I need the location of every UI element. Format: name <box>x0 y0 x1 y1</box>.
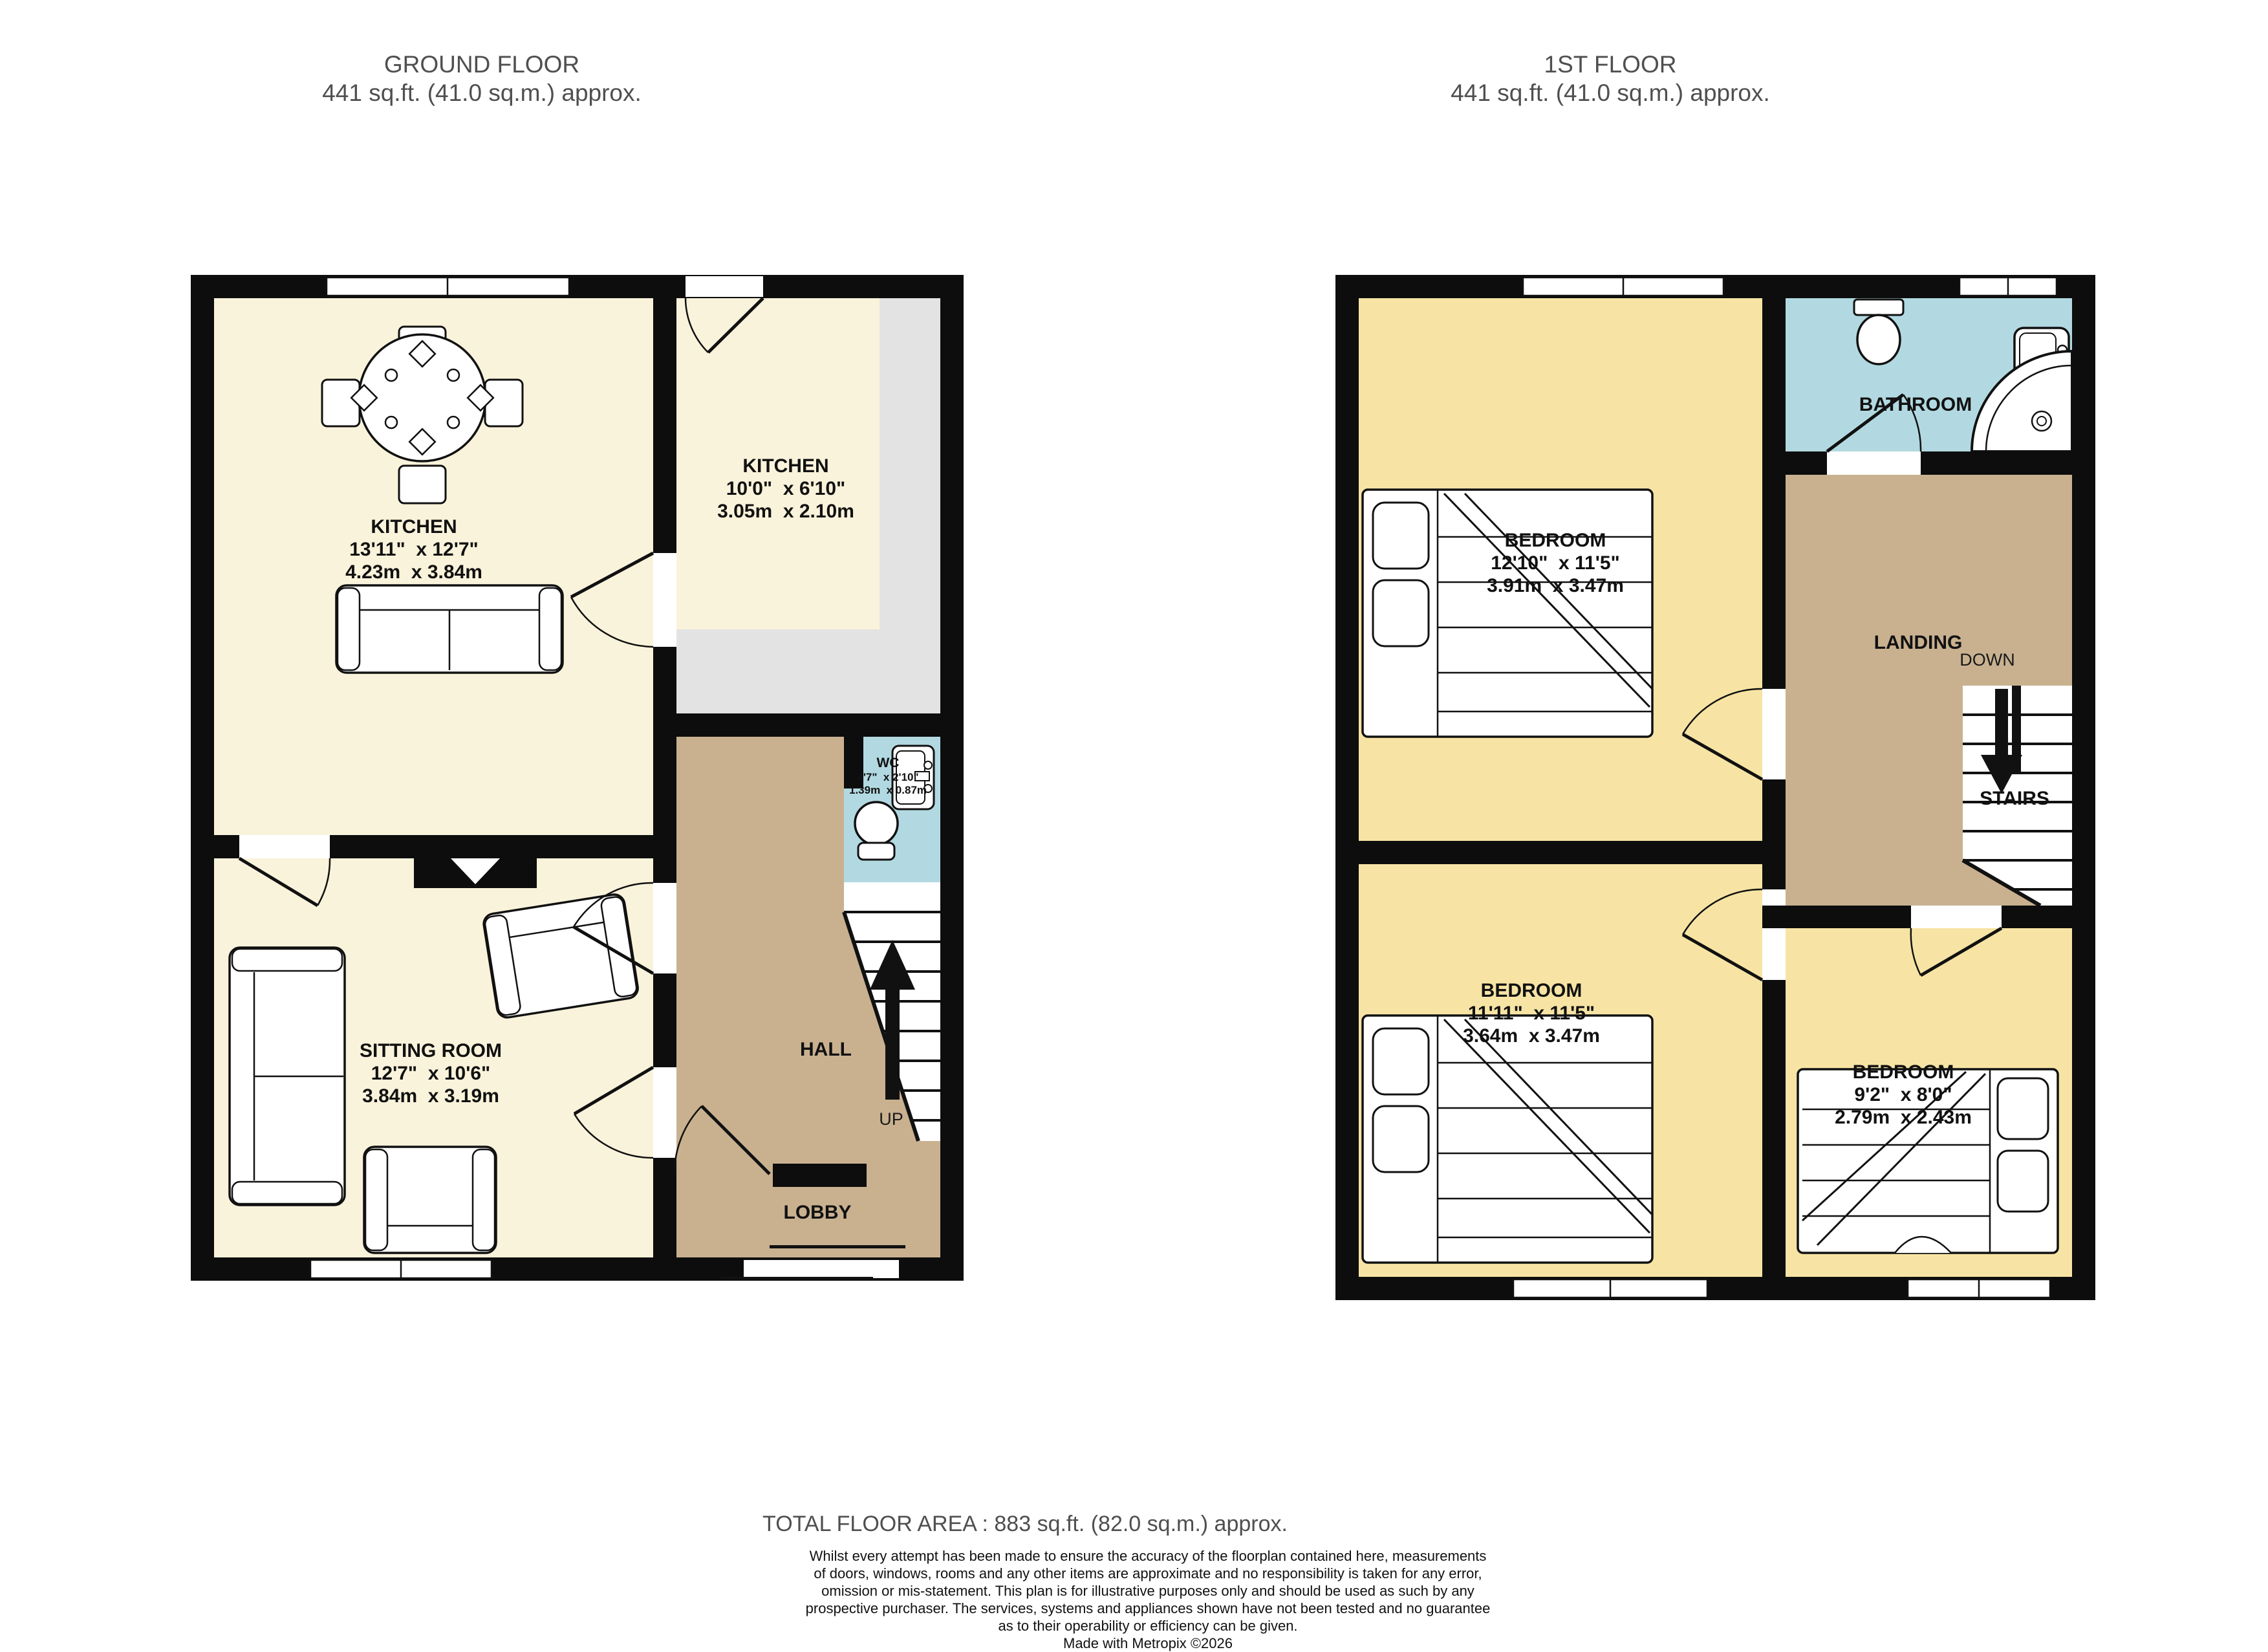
room-dims-imperial: 11'11" x 11'5" <box>1463 1002 1600 1025</box>
disclaimer-line: omission or mis-statement. This plan is … <box>806 1582 1491 1600</box>
room-label-kitchen-small: KITCHEN 10'0" x 6'10" 3.05m x 2.10m <box>717 455 854 523</box>
room-dims-imperial: 13'11" x 12'7" <box>345 538 482 561</box>
kitchen-sofa <box>336 585 563 673</box>
ground-floor-title: GROUND FLOOR 441 sq.ft. (41.0 sq.m.) app… <box>322 50 642 107</box>
pillow <box>1998 1078 2048 1139</box>
wall <box>2072 275 2095 1300</box>
table-detail <box>385 417 397 428</box>
wall <box>1762 298 1786 689</box>
armchair-bottom <box>364 1147 496 1253</box>
room-name: SITTING ROOM <box>360 1039 502 1062</box>
room-dims-metric: 1.39m x 0.87m <box>849 784 927 797</box>
disclaimer: Whilst every attempt has been made to en… <box>806 1547 1491 1652</box>
room-label-bedroom-1: BEDROOM 12'10" x 11'5" 3.91m x 3.47m <box>1487 529 1624 597</box>
sofa-arm <box>232 1182 342 1204</box>
lobby-threshold <box>770 1245 905 1248</box>
sitting-room-sofa <box>230 948 345 1205</box>
bed-double-1 <box>1363 490 1652 737</box>
room-dims-metric: 3.05m x 2.10m <box>717 500 854 523</box>
toilet-icon <box>1857 315 1900 364</box>
disclaimer-line: prospective purchaser. The services, sys… <box>806 1600 1491 1617</box>
ground-floor-area-text: 441 sq.ft. (41.0 sq.m.) approx. <box>322 79 642 107</box>
wall <box>653 1158 676 1257</box>
room-name: BEDROOM <box>1835 1061 1972 1083</box>
table-detail <box>448 369 459 381</box>
room-name: KITCHEN <box>345 516 482 538</box>
room-name: WC <box>849 755 927 771</box>
armchair-top <box>482 893 640 1019</box>
pillow <box>1998 1151 2048 1212</box>
wall <box>191 275 214 1281</box>
armchair-arm <box>473 1149 495 1250</box>
room-dims-imperial: 9'2" x 8'0" <box>1835 1083 1972 1106</box>
wall <box>1786 451 1827 475</box>
sofa-arm <box>232 949 342 971</box>
bed-double-2 <box>1363 1016 1652 1263</box>
ground-floor-title-text: GROUND FLOOR <box>322 50 642 79</box>
staircase-up <box>844 882 940 1141</box>
table-detail <box>448 417 459 428</box>
room-label-bedroom-2: BEDROOM 11'11" x 11'5" 3.64m x 3.47m <box>1463 979 1600 1047</box>
toilet-cistern <box>1854 299 1903 315</box>
first-floor-title: 1ST FLOOR 441 sq.ft. (41.0 sq.m.) approx… <box>1451 50 1770 107</box>
room-label-sitting-room: SITTING ROOM 12'7" x 10'6" 3.84m x 3.19m <box>360 1039 502 1107</box>
wall <box>653 647 676 713</box>
total-floor-area: TOTAL FLOOR AREA : 883 sq.ft. (82.0 sq.m… <box>762 1511 1288 1537</box>
armchair-arm <box>365 1149 387 1250</box>
room-label-lobby: LOBBY <box>784 1201 852 1224</box>
door-opening <box>1827 451 1921 475</box>
disclaimer-line: as to their operability or efficiency ca… <box>806 1617 1491 1635</box>
room-dims-metric: 3.64m x 3.47m <box>1463 1025 1600 1047</box>
room-dims-metric: 2.79m x 2.43m <box>1835 1106 1972 1129</box>
wall <box>773 1164 867 1187</box>
first-floor-title-text: 1ST FLOOR <box>1451 50 1770 79</box>
door-opening <box>686 276 763 297</box>
landing-floor <box>1786 475 1963 906</box>
wall <box>1762 864 1786 889</box>
wall <box>2002 906 2072 928</box>
entrance-opening <box>744 1260 899 1278</box>
room-name: KITCHEN <box>717 455 854 477</box>
room-dims-imperial: 10'0" x 6'10" <box>717 477 854 500</box>
room-label-landing: LANDING <box>1874 631 1963 654</box>
sofa-arm <box>539 588 561 670</box>
disclaimer-line: of doors, windows, rooms and any other i… <box>806 1565 1491 1582</box>
door-opening <box>239 835 330 858</box>
stairs-direction-down: DOWN <box>1960 649 2014 671</box>
room-label-bathroom: BATHROOM <box>1859 393 1972 416</box>
first-floor-area-text: 441 sq.ft. (41.0 sq.m.) approx. <box>1451 79 1770 107</box>
toilet-icon <box>855 802 898 845</box>
toilet-cistern <box>858 843 894 860</box>
hall-floor <box>676 737 844 1187</box>
dining-chair-west <box>322 380 360 426</box>
wall <box>653 298 676 553</box>
room-dims-metric: 3.84m x 3.19m <box>360 1085 502 1107</box>
wall <box>653 713 940 737</box>
room-name: BEDROOM <box>1463 979 1600 1002</box>
room-label-stairs: STAIRS <box>1980 787 2049 810</box>
room-dims-imperial: 12'10" x 11'5" <box>1487 552 1624 574</box>
room-dims-metric: 3.91m x 3.47m <box>1487 574 1624 597</box>
room-label-kitchen-main: KITCHEN 13'11" x 12'7" 4.23m x 3.84m <box>345 516 482 583</box>
wall <box>653 858 676 883</box>
pillow <box>1373 580 1429 646</box>
wall <box>1335 275 1359 1300</box>
kitchen-counter-bottom <box>676 629 940 713</box>
wall <box>191 275 964 298</box>
room-label-wc: WC 4'7" x 2'10" 1.39m x 0.87m <box>849 755 927 797</box>
dining-chair-east <box>485 380 523 426</box>
disclaimer-line: Whilst every attempt has been made to en… <box>806 1547 1491 1565</box>
bath-drain-inner <box>2037 417 2046 426</box>
room-dims-imperial: 12'7" x 10'6" <box>360 1062 502 1085</box>
room-dims-metric: 4.23m x 3.84m <box>345 561 482 583</box>
pillow <box>1373 1028 1429 1094</box>
credit-line: Made with Metropix ©2026 <box>806 1635 1491 1652</box>
table-detail <box>385 369 397 381</box>
wall <box>1762 980 1786 1277</box>
stairs-direction-up: UP <box>879 1108 903 1131</box>
room-dims-imperial: 4'7" x 2'10" <box>849 771 927 784</box>
wall <box>1921 451 2072 475</box>
pillow <box>1373 1106 1429 1172</box>
wall <box>940 275 964 1281</box>
pillow <box>1373 503 1429 569</box>
wall <box>653 737 676 835</box>
wall <box>1762 906 1911 928</box>
dining-chair-south <box>399 466 446 503</box>
entrance-step <box>721 1277 873 1279</box>
ground-floor-drawing <box>191 275 964 1281</box>
first-floor-plan: BEDROOM 12'10" x 11'5" 3.91m x 3.47m BAT… <box>1335 275 2095 1300</box>
floorplan-page: { "ground_floor": { "title": "GROUND FLO… <box>0 0 2268 1651</box>
sofa-arm <box>338 588 360 670</box>
wall <box>653 973 676 1067</box>
room-label-bedroom-3: BEDROOM 9'2" x 8'0" 2.79m x 2.43m <box>1835 1061 1972 1129</box>
wall <box>1335 841 1786 864</box>
ground-floor-plan: KITCHEN 13'11" x 12'7" 4.23m x 3.84m KIT… <box>191 275 964 1281</box>
room-label-hall: HALL <box>800 1038 852 1061</box>
room-name: BEDROOM <box>1487 529 1624 552</box>
wall <box>1762 779 1786 841</box>
